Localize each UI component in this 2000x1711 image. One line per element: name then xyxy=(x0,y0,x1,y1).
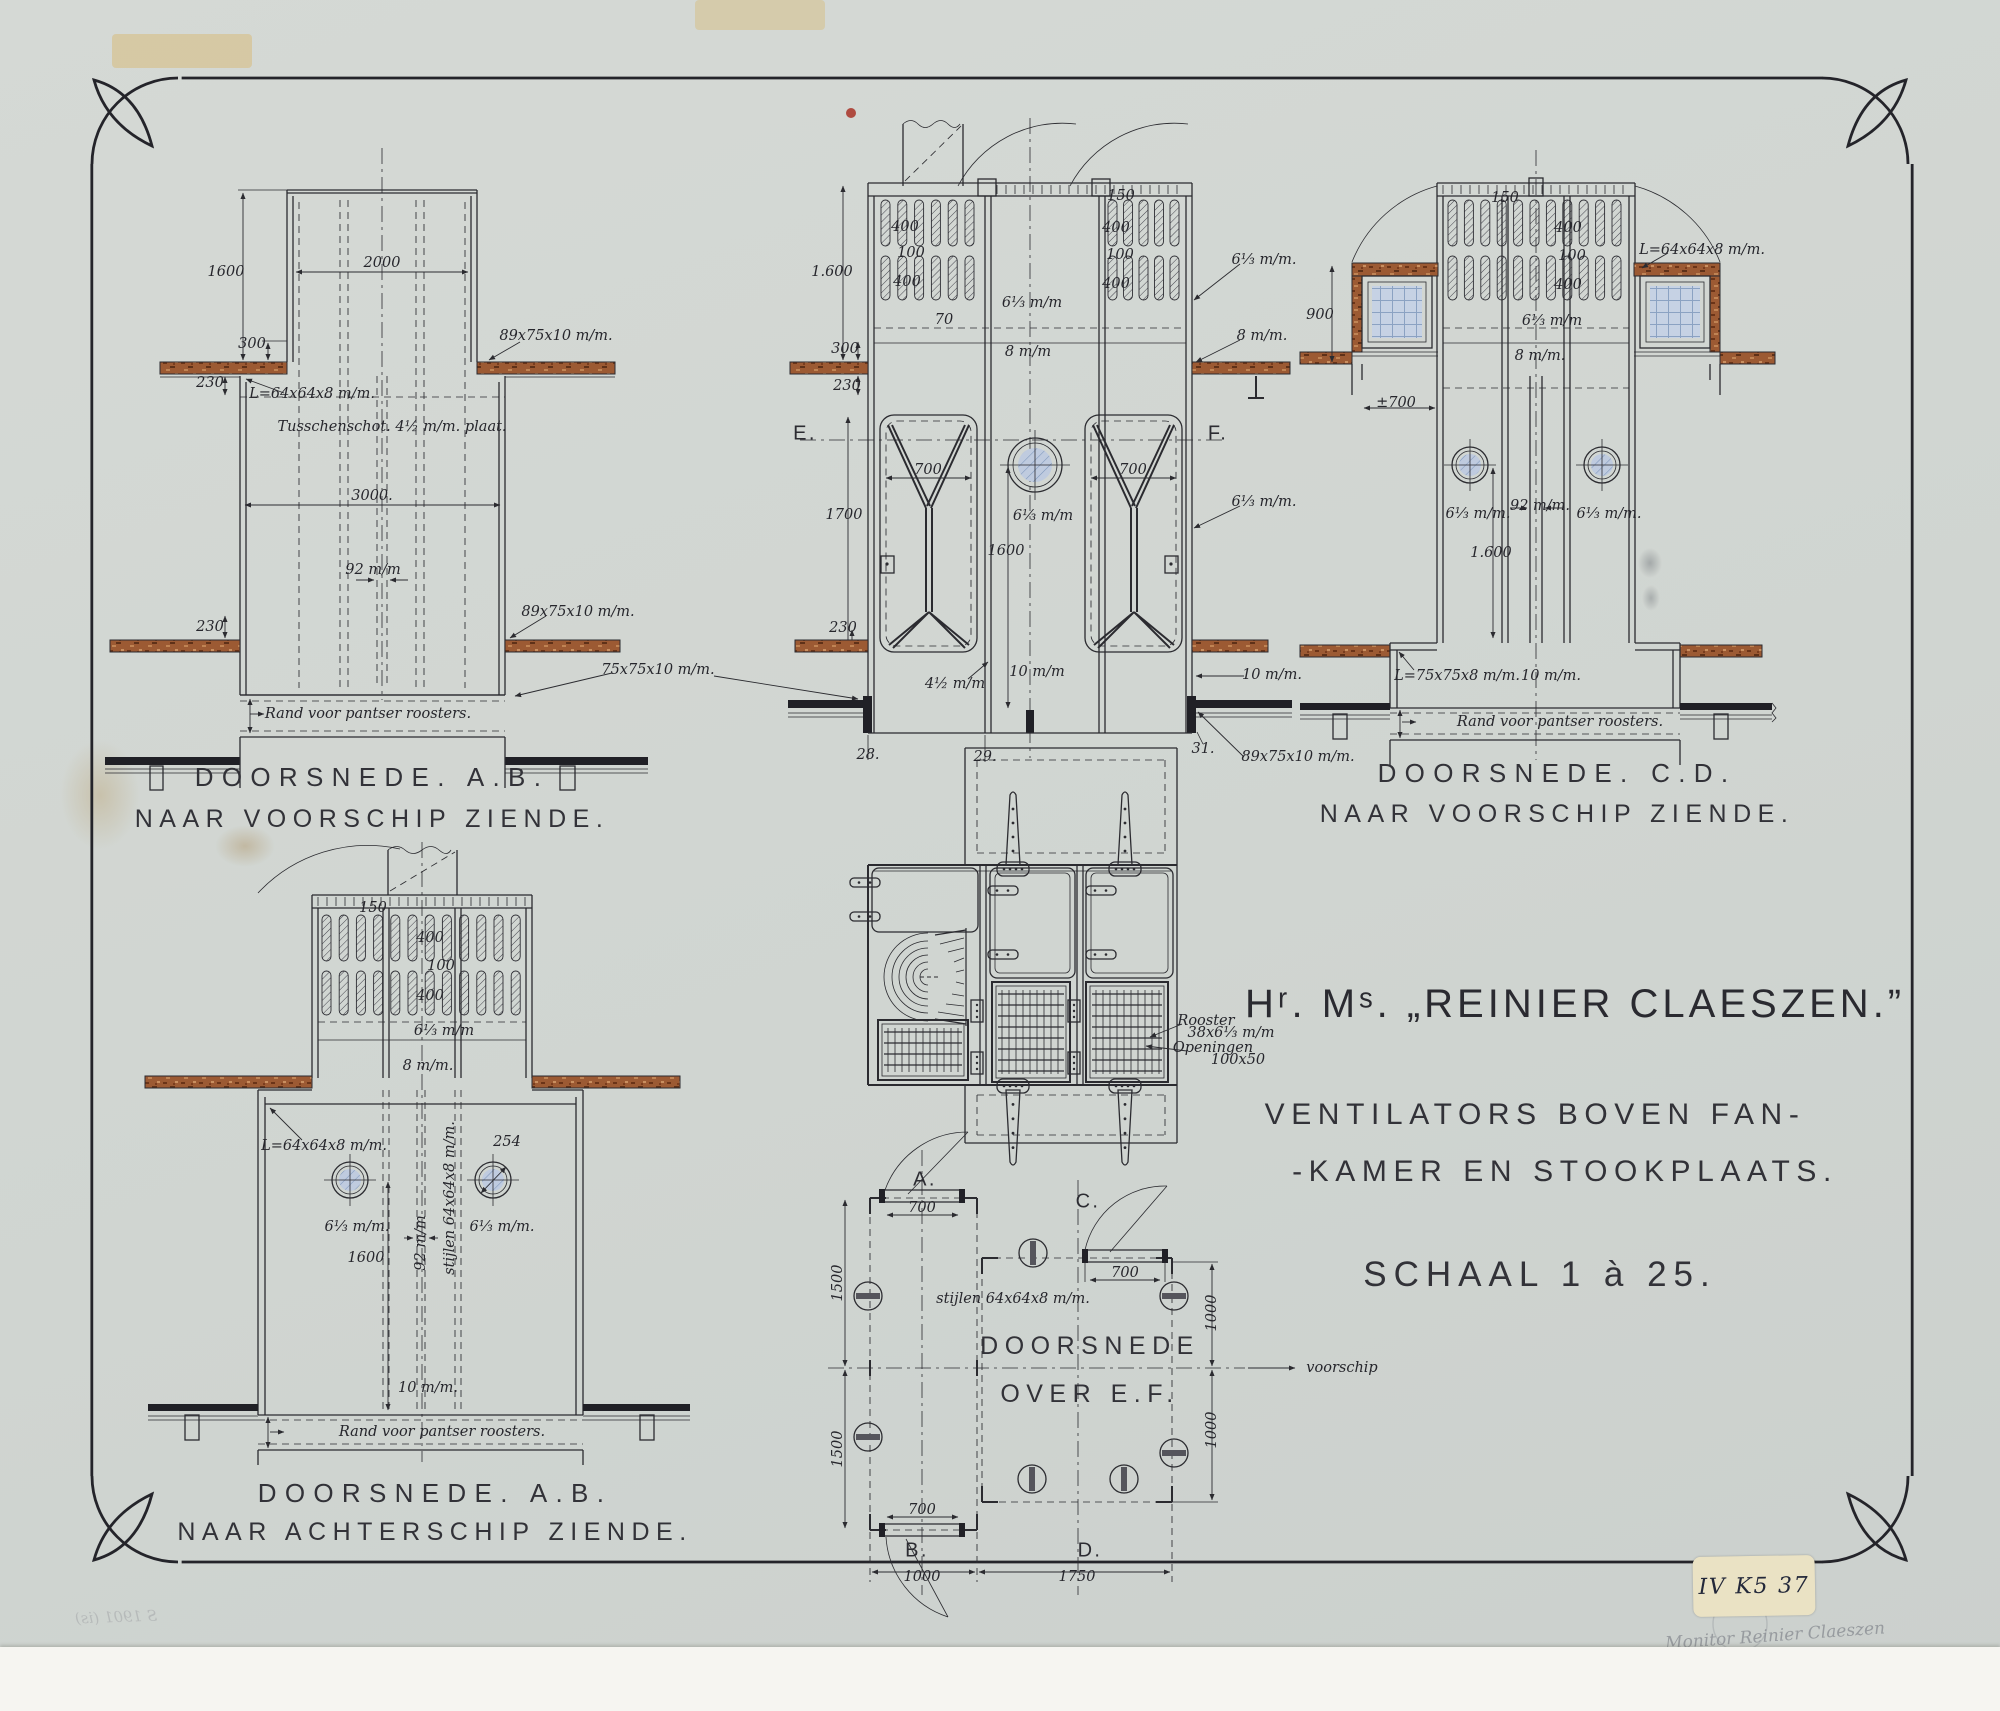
dimension-label: 10 m/m xyxy=(1009,664,1064,680)
dimension-label: 1600 xyxy=(348,1250,385,1266)
dimension-label: ±700 xyxy=(1376,395,1416,411)
sheet-subtitle-line1: VENTILATORS BOVEN FAN- xyxy=(1195,1098,1875,1132)
dimension-label: 1600 xyxy=(988,543,1025,559)
dimension-label: 1500 xyxy=(830,1431,846,1468)
dimension-label: 6⅓ m/m xyxy=(1522,313,1582,329)
dimension-label: 300 xyxy=(238,336,266,352)
dimension-label: 10 m/m. xyxy=(1521,668,1581,684)
dimension-label: B. xyxy=(905,1540,929,1563)
dimension-label: 28. xyxy=(856,747,879,763)
dimension-label: 230 xyxy=(196,375,224,391)
dimension-label: 150 xyxy=(1491,190,1519,206)
photo-backing xyxy=(0,1647,2000,1711)
dimension-label: 1.600 xyxy=(1470,545,1512,561)
dimension-label: 92 m/m xyxy=(345,562,400,578)
dimension-label: 1000 xyxy=(904,1569,941,1585)
dimension-label: 1600 xyxy=(208,264,245,280)
dimension-label: 400 xyxy=(416,988,444,1004)
caption-view-ab-fore-line2: NAAR VOORSCHIP ZIENDE. xyxy=(92,805,652,834)
dimension-label: 92 m/m. xyxy=(1510,498,1570,514)
dimension-label: 6⅓ m/m xyxy=(1002,295,1062,311)
drawing-sheet: 1600200030023089x75x10 m/m.L=64x64x8 m/m… xyxy=(0,0,2000,1711)
dimension-label: L=75x75x8 m/m. xyxy=(1394,668,1520,684)
dimension-label: 700 xyxy=(908,1200,936,1216)
dimension-label: 6⅓ m/m. xyxy=(1232,252,1297,268)
dimension-label: 400 xyxy=(893,274,921,290)
dimension-label: 1700 xyxy=(826,507,863,523)
bleedthrough-note: S 1901 (is) xyxy=(75,1607,158,1628)
dimension-label: 2000 xyxy=(364,255,401,271)
dimension-label: stijlen 64x64x8 m/m. xyxy=(442,1121,458,1275)
dimension-label: 230 xyxy=(196,619,224,635)
dimension-label: Rand voor pantser roosters. xyxy=(265,706,471,722)
dimension-label: D. xyxy=(1078,1540,1103,1563)
dimension-label: 230 xyxy=(833,378,861,394)
dimension-label: L=64x64x8 m/m. xyxy=(261,1138,387,1154)
dimension-label: 1.600 xyxy=(811,264,853,280)
dimension-label: Rand voor pantser roosters. xyxy=(1457,714,1663,730)
sheet-title: Hʳ. Mˢ. „REINIER CLAESZEN.” xyxy=(1245,982,1885,1027)
dimension-label: 92 m/m xyxy=(413,1215,429,1270)
dimension-label: 100 xyxy=(1558,248,1586,264)
dimension-label: 400 xyxy=(1554,277,1582,293)
dimension-label: 100 xyxy=(897,245,925,261)
caption-view-cd-line1: DOORSNEDE. C.D. xyxy=(1277,758,1837,789)
dimension-label: 8 m/m xyxy=(1005,344,1051,360)
dimension-label: C. xyxy=(1076,1191,1101,1214)
dimension-label: 100 xyxy=(1106,247,1134,263)
dimension-label: 8 m/m. xyxy=(1515,348,1566,364)
dimension-label: E. xyxy=(793,423,817,446)
dimension-label: 150 xyxy=(1107,188,1135,204)
dimension-label: 150 xyxy=(359,900,387,916)
dimension-label: Tusschenschot. 4½ m/m. plaat. xyxy=(277,419,506,435)
dimension-label: 700 xyxy=(1111,1265,1139,1281)
dimension-label: 100x50 xyxy=(1211,1052,1265,1068)
dimension-label: L=64x64x8 m/m. xyxy=(249,386,375,402)
dimension-label: 70 xyxy=(935,312,953,328)
dimension-label: 8 m/m. xyxy=(403,1058,454,1074)
dimension-label: 6⅓ m/m. xyxy=(1446,506,1511,522)
dimension-label: F. xyxy=(1208,423,1228,446)
dimension-label: 400 xyxy=(1554,220,1582,236)
dimension-label: 8 m/m. xyxy=(1237,328,1288,344)
dimension-label: 400 xyxy=(1102,220,1130,236)
caption-view-cd-line2: NAAR VOORSCHIP ZIENDE. xyxy=(1277,800,1837,829)
dimension-label: 230 xyxy=(829,620,857,636)
dimension-label: 10 m/m. xyxy=(1242,667,1302,683)
dimension-label: 700 xyxy=(908,1502,936,1518)
dimension-label: 3000. xyxy=(351,488,393,504)
dimension-label: 700 xyxy=(1119,462,1147,478)
archive-number: IV K5 37 xyxy=(1698,1573,1809,1600)
dimension-label: 31. xyxy=(1191,741,1214,757)
dimension-label: 1750 xyxy=(1059,1569,1096,1585)
dimension-label: 89x75x10 m/m. xyxy=(499,328,612,344)
sheet-subtitle-line2: -KAMER EN STOOKPLAATS. xyxy=(1225,1155,1905,1189)
dimension-label: 100 xyxy=(427,958,455,974)
dimension-label: 4½ m/m xyxy=(925,676,985,692)
dimension-label: 400 xyxy=(1102,276,1130,292)
sheet-scale: SCHAAL 1 à 25. xyxy=(1240,1255,1840,1295)
dimension-label: 6⅓ m/m. xyxy=(325,1219,390,1235)
dimension-label: 300 xyxy=(831,341,859,357)
dimension-label: 75x75x10 m/m. xyxy=(601,662,714,678)
dimension-label: 900 xyxy=(1306,307,1334,323)
dimension-label: 6⅓ m/m. xyxy=(470,1219,535,1235)
dimension-label: 6⅓ m/m. xyxy=(1232,494,1297,510)
dimension-label: 1500 xyxy=(830,1265,846,1302)
caption-view-ab-aft-line1: DOORSNEDE. A.B. xyxy=(155,1478,715,1509)
dimension-label: voorschip xyxy=(1306,1360,1377,1376)
dimension-label: L=64x64x8 m/m. xyxy=(1639,242,1765,258)
dimension-label: 6⅓ m/m xyxy=(414,1023,474,1039)
dimension-label: 29. xyxy=(973,749,996,765)
dimension-label: 700 xyxy=(914,462,942,478)
dimension-label: 254 xyxy=(493,1134,521,1150)
dimension-label: 10 m/m. xyxy=(398,1380,458,1396)
dimension-label: 1000 xyxy=(1204,1295,1220,1332)
dimension-label: 400 xyxy=(416,930,444,946)
dimension-label: 400 xyxy=(891,219,919,235)
dimension-label: Rand voor pantser roosters. xyxy=(339,1424,545,1440)
dimension-label: 1000 xyxy=(1204,1412,1220,1449)
dimension-label: A. xyxy=(913,1169,937,1192)
dimension-label: 6⅓ m/m xyxy=(1013,508,1073,524)
archive-sticker: IV K5 37 xyxy=(1692,1555,1815,1617)
dimension-label: 6⅓ m/m. xyxy=(1577,506,1642,522)
caption-view-ab-fore-line1: DOORSNEDE. A.B. xyxy=(92,762,652,793)
caption-plan-line1: DOORSNEDE xyxy=(930,1332,1250,1361)
dimension-label: stijlen 64x64x8 m/m. xyxy=(936,1291,1090,1307)
caption-plan-line2: OVER E.F. xyxy=(930,1380,1250,1409)
dimension-label: 38x6⅓ m/m xyxy=(1188,1025,1275,1041)
caption-view-ab-aft-line2: NAAR ACHTERSCHIP ZIENDE. xyxy=(155,1518,715,1547)
annotation-layer: 1600200030023089x75x10 m/m.L=64x64x8 m/m… xyxy=(0,0,2000,1711)
dimension-label: 89x75x10 m/m. xyxy=(521,604,634,620)
